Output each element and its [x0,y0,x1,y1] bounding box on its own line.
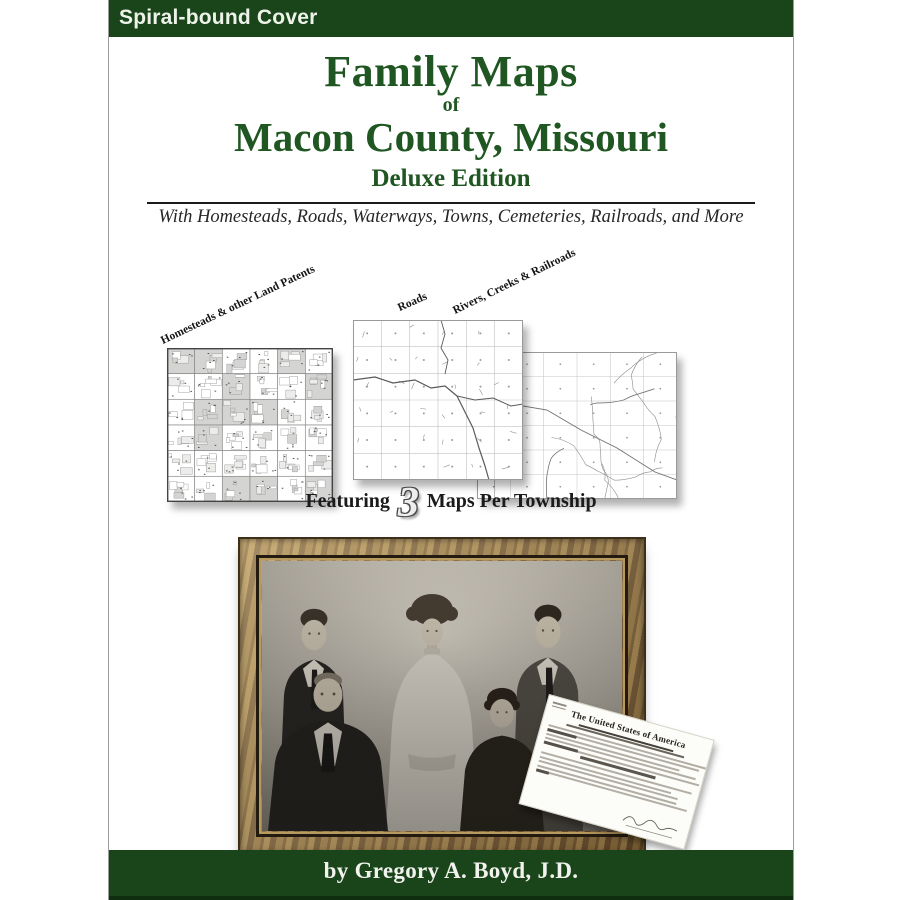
author-byline: by Gregory A. Boyd, J.D. [324,858,579,883]
book-cover: Spiral-bound Cover Family Maps of Macon … [0,0,900,900]
binding-type-badge: Spiral-bound Cover [109,0,317,35]
author-bar: by Gregory A. Boyd, J.D. [109,850,793,900]
binding-bar: Spiral-bound Cover [109,0,793,37]
homesteads-map-thumbnail [167,348,333,502]
title-block: Family Maps of Macon County, Missouri De… [109,50,793,228]
title-line-1: Family Maps [109,50,793,95]
edition-label: Deluxe Edition [109,165,793,193]
title-line-2: Macon County, Missouri [109,116,793,159]
map-label-homesteads: Homesteads & other Land Patents [159,263,317,347]
tagline: With Homesteads, Roads, Waterways, Towns… [109,207,793,228]
roads-map-thumbnail [353,320,523,480]
featuring-suffix: Maps Per Township [427,490,597,512]
cover-page: Spiral-bound Cover Family Maps of Macon … [108,0,794,900]
divider-rule [147,202,755,204]
title-connector: of [109,95,793,116]
map-label-rivers: Rivers, Creeks & Railroads [451,247,578,317]
map-label-roads: Roads [396,291,429,314]
featuring-prefix: Featuring [305,490,389,512]
featuring-line: Featuring3 Maps Per Township [109,490,793,513]
